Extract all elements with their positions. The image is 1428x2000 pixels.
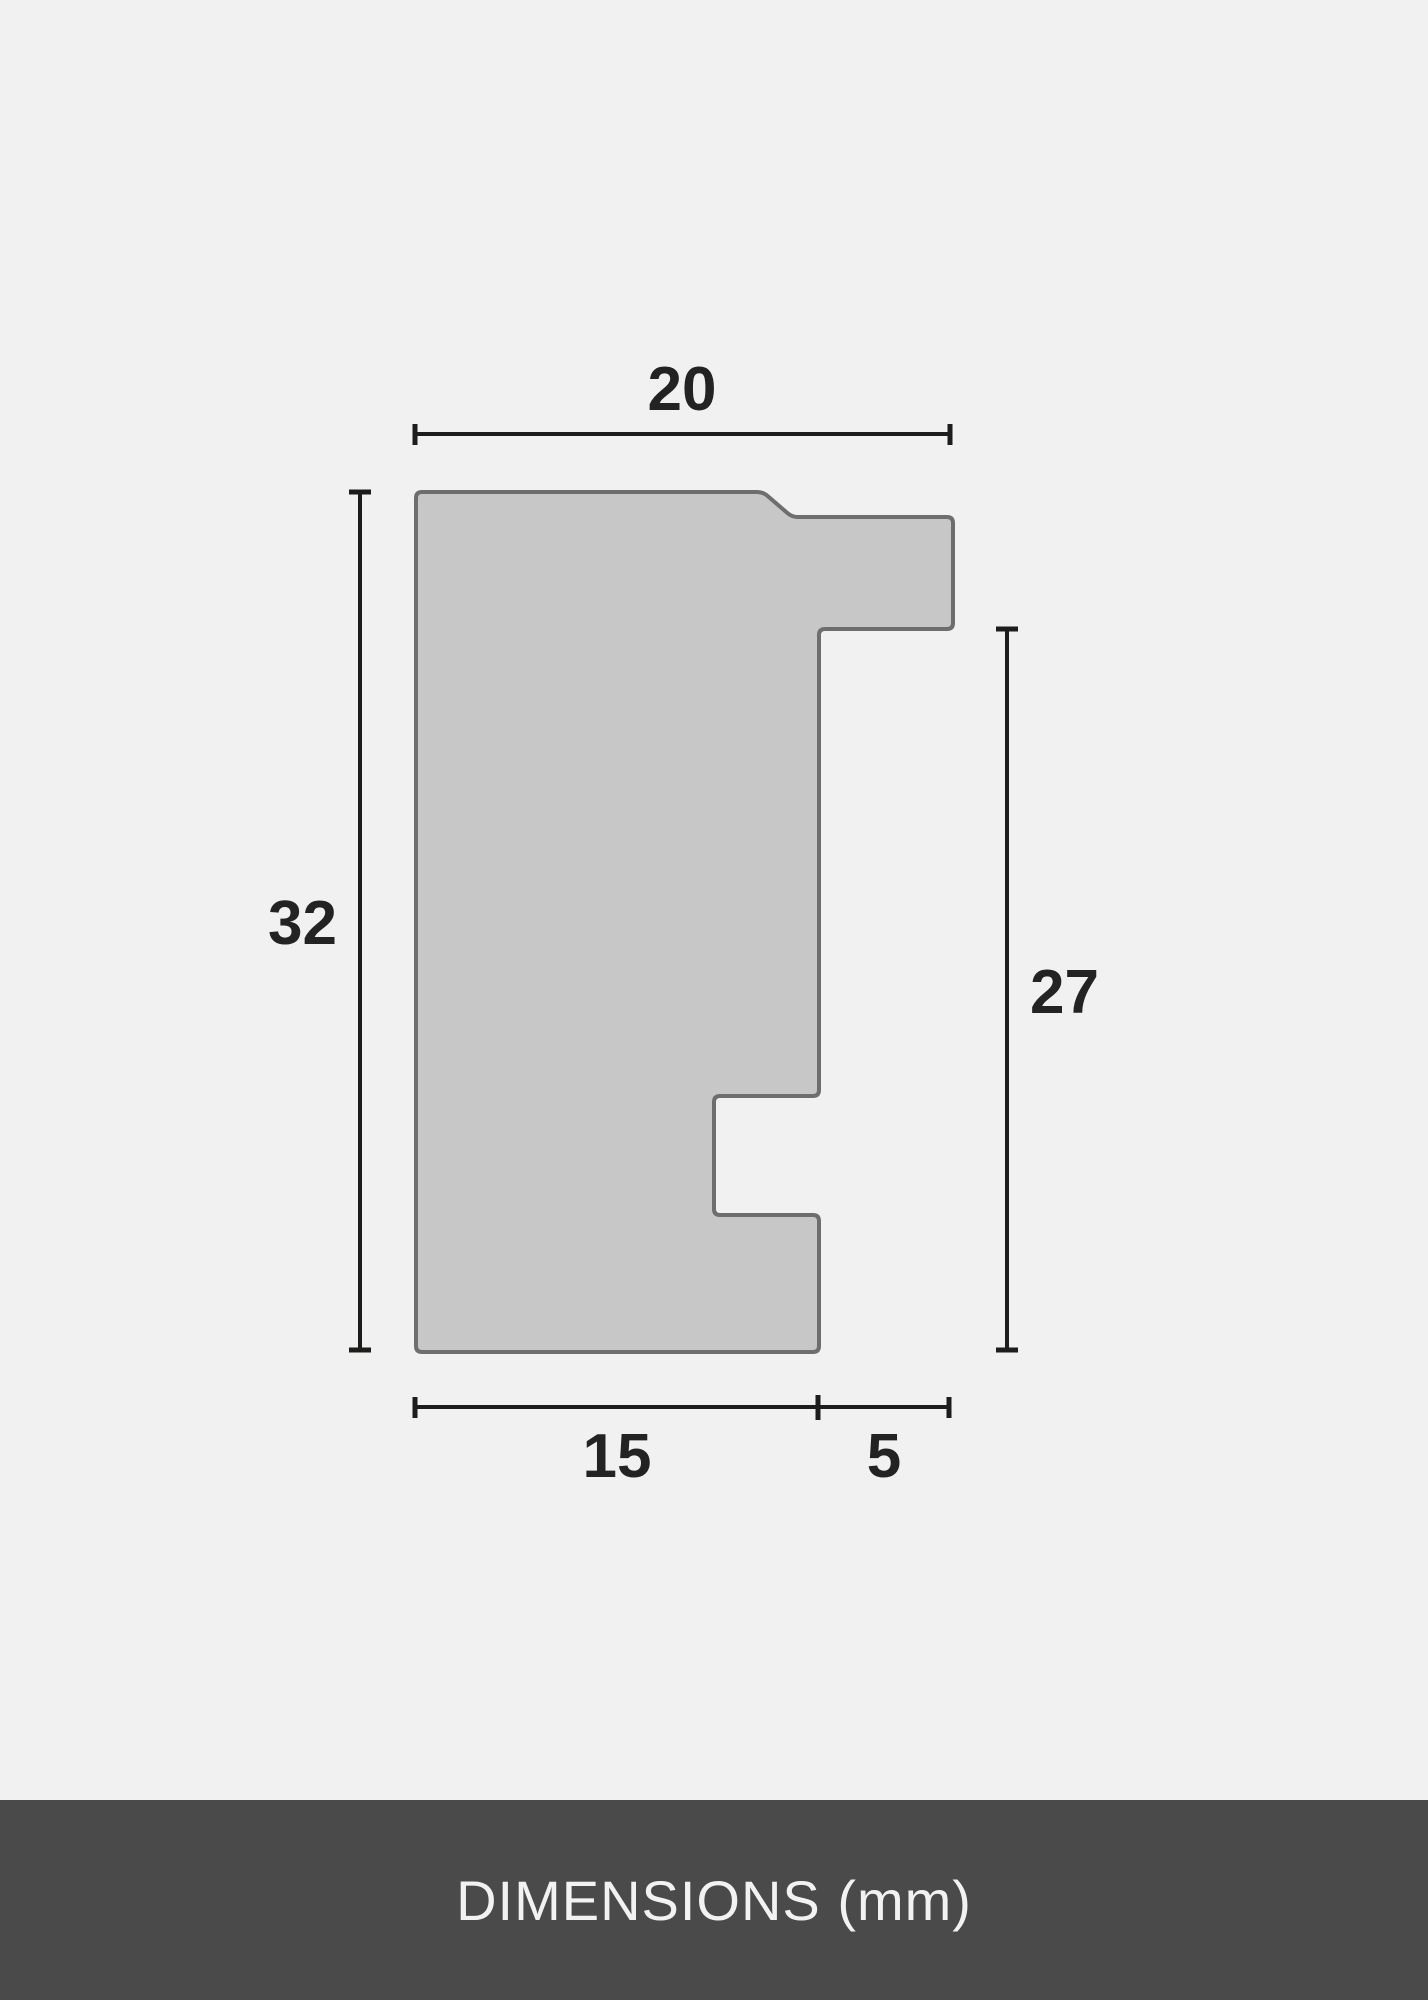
dim-bottom-widths: 15 5 <box>415 1395 949 1491</box>
dim-label-bottom-inner-width: 15 <box>583 1422 652 1491</box>
profile-diagram: 20 32 27 15 5 <box>0 0 1428 1800</box>
footer-title: DIMENSIONS (mm) <box>456 1868 972 1933</box>
footer-bar: DIMENSIONS (mm) <box>0 1800 1428 2000</box>
dim-right-height: 27 <box>996 629 1099 1350</box>
dim-label-bottom-outer-width: 5 <box>867 1422 901 1491</box>
dim-left-height: 32 <box>268 492 371 1350</box>
page: 20 32 27 15 5 DIMENSIONS (mm) <box>0 0 1428 2000</box>
dim-label-top-width: 20 <box>648 355 717 424</box>
dim-label-left-height: 32 <box>268 889 337 958</box>
dim-top-width: 20 <box>415 355 950 445</box>
moulding-profile-shape <box>416 492 953 1352</box>
dim-label-right-height: 27 <box>1030 958 1099 1027</box>
